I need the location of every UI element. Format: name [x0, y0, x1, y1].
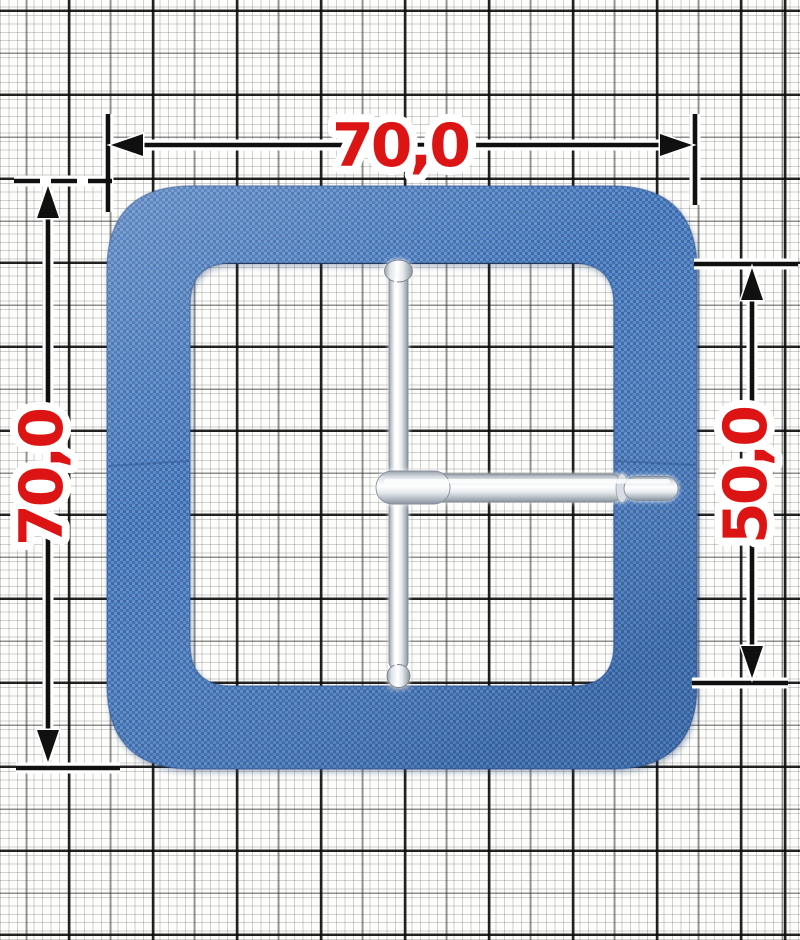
dimension-label-height: 70,0: [7, 410, 77, 546]
dimension-label-width: 70,0: [332, 111, 468, 181]
pin-ball-tip: [387, 665, 410, 688]
bar-collar: [376, 471, 450, 504]
buckle-technical-photo: 70,0 70,0 50,0: [0, 0, 800, 940]
buckle-photo: [107, 186, 697, 769]
dimension-label-inner-height: 50,0: [711, 408, 781, 544]
arrowhead-down: [741, 646, 763, 678]
bar-tube: [430, 474, 624, 502]
arrowhead-down: [37, 730, 59, 762]
arrowhead-right: [660, 134, 692, 156]
arrowhead-up: [741, 268, 763, 300]
graph-paper-background: 70,0 70,0 50,0: [0, 0, 800, 940]
arrowhead-left: [111, 134, 143, 156]
pin-head: [385, 260, 413, 282]
arrowhead-up: [37, 186, 59, 218]
